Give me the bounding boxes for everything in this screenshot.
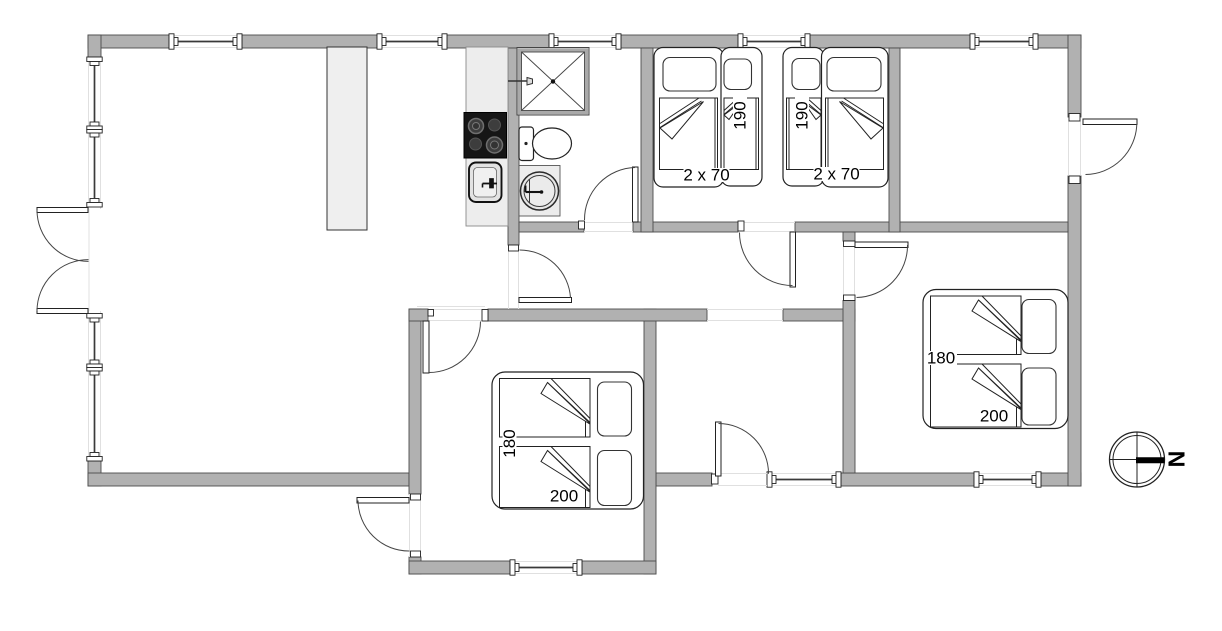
- svg-text:180: 180: [500, 429, 519, 457]
- svg-text:180: 180: [927, 349, 955, 368]
- svg-text:200: 200: [550, 487, 578, 506]
- svg-text:200: 200: [980, 407, 1008, 426]
- svg-text:190: 190: [731, 101, 750, 129]
- svg-text:190: 190: [793, 101, 812, 129]
- svg-text:N: N: [1164, 451, 1190, 468]
- svg-text:2 x 70: 2 x 70: [813, 165, 859, 184]
- svg-text:2 x 70: 2 x 70: [683, 166, 729, 185]
